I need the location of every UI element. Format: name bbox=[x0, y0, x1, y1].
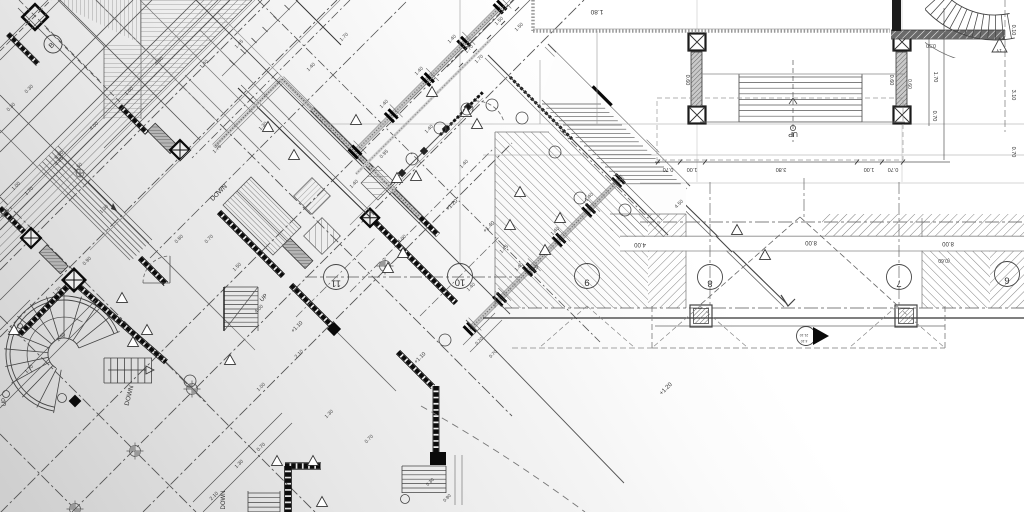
svg-text:8.00: 8.00 bbox=[942, 240, 954, 246]
svg-text:1.00: 1.00 bbox=[687, 166, 698, 172]
svg-text:3.80: 3.80 bbox=[776, 166, 787, 172]
svg-text:0.70: 0.70 bbox=[1010, 147, 1016, 158]
svg-text:4.10: 4.10 bbox=[801, 339, 808, 343]
svg-text:4.00: 4.00 bbox=[634, 241, 646, 247]
svg-text:11: 11 bbox=[331, 278, 341, 289]
svg-text:3.10: 3.10 bbox=[1010, 90, 1016, 101]
svg-text:8.00: 8.00 bbox=[805, 239, 817, 245]
svg-text:6: 6 bbox=[1004, 275, 1009, 286]
svg-text:0.70: 0.70 bbox=[931, 111, 937, 122]
svg-text:UP: UP bbox=[788, 130, 798, 137]
svg-text:(0.60: (0.60 bbox=[938, 257, 950, 263]
svg-text:10: 10 bbox=[455, 277, 466, 288]
svg-text:0.50: 0.50 bbox=[926, 42, 936, 48]
svg-text:0.70: 0.70 bbox=[663, 166, 674, 172]
svg-text:0.70: 0.70 bbox=[888, 166, 899, 172]
svg-text:0.60: 0.60 bbox=[906, 79, 912, 89]
svg-text:0.60: 0.60 bbox=[684, 75, 690, 86]
svg-text:1.80: 1.80 bbox=[590, 8, 603, 15]
svg-text:9: 9 bbox=[584, 277, 589, 288]
svg-text:1.70: 1.70 bbox=[932, 72, 938, 83]
svg-text:1.00: 1.00 bbox=[864, 166, 875, 172]
svg-text:21.10: 21.10 bbox=[800, 333, 809, 337]
svg-text:0.60: 0.60 bbox=[888, 75, 894, 86]
svg-text:1Y: 1Y bbox=[996, 48, 1002, 53]
